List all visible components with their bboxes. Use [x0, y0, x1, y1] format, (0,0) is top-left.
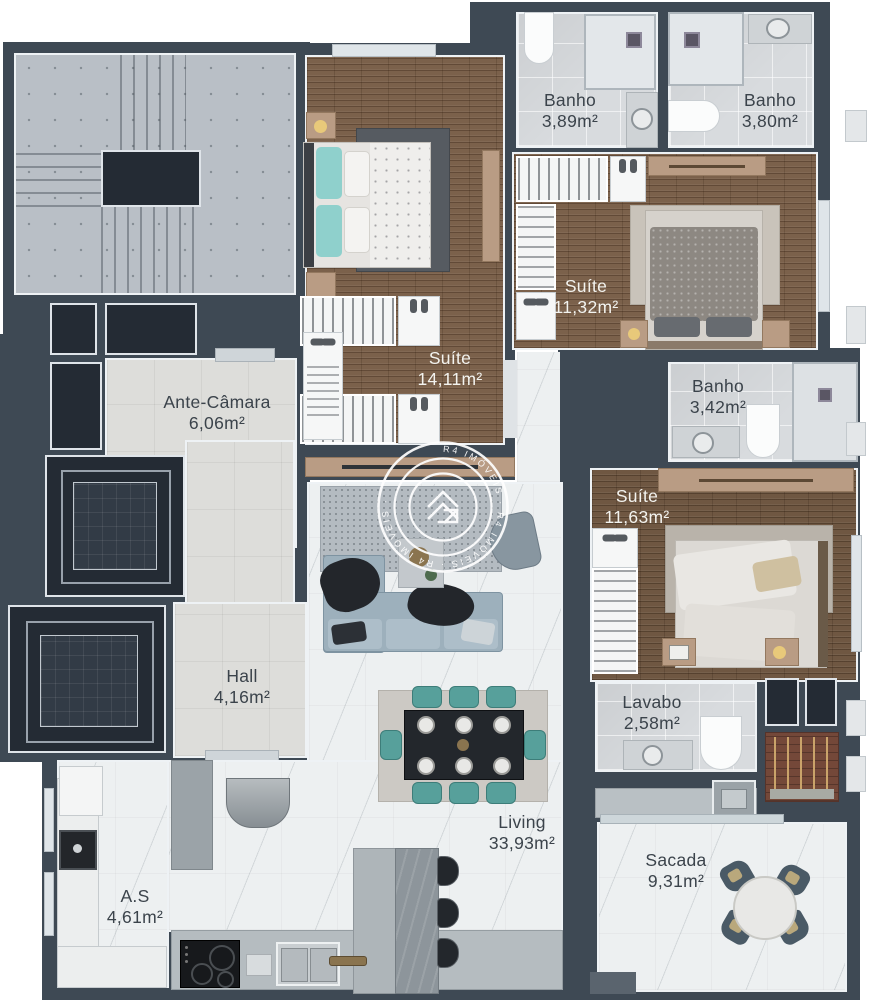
- room-name: Suíte: [384, 348, 516, 369]
- elevator-shaft: [45, 455, 185, 597]
- tv-dresser: [482, 150, 500, 262]
- duct-shaft: [765, 678, 799, 726]
- dining-chair: [486, 782, 516, 804]
- ac-unit: [846, 756, 866, 792]
- stairs-upper-flight: [120, 55, 186, 150]
- ac-unit: [845, 110, 867, 142]
- room-label-banho-380: Banho 3,80m²: [704, 90, 836, 132]
- blanket: [370, 143, 430, 267]
- dining-chair: [380, 730, 402, 760]
- room-label-banho-389: Banho 3,89m²: [504, 90, 636, 132]
- window: [44, 872, 54, 936]
- window: [44, 788, 54, 852]
- dining-chair: [412, 686, 442, 708]
- kitchen-island: [353, 848, 437, 992]
- shoe-cabinet: [303, 332, 343, 440]
- sink: [766, 18, 790, 39]
- duvet: [650, 227, 758, 321]
- duct-shaft: [50, 303, 97, 355]
- room-name: Ante-Câmara: [135, 392, 299, 413]
- room-name: Suíte: [568, 486, 706, 507]
- pillow: [344, 151, 370, 197]
- dining-chair: [449, 782, 479, 804]
- burner: [217, 971, 234, 988]
- room-name: Suíte: [520, 276, 652, 297]
- room-area: 3,80m²: [704, 111, 836, 132]
- knob: [185, 953, 188, 956]
- headboard: [646, 341, 762, 349]
- hall-corridor-floor: [185, 440, 295, 606]
- pillow: [654, 317, 700, 337]
- window: [332, 44, 436, 57]
- shower-head: [626, 32, 642, 48]
- entrance-door: [215, 348, 275, 362]
- balcony-corner-block: [590, 972, 636, 994]
- watermark-inner-ring: [410, 474, 477, 541]
- shoe-rack: [610, 156, 646, 202]
- duct-shaft: [50, 362, 102, 450]
- floor-plan: Banho 3,89m² Banho 3,80m² Suíte 11,32m² …: [0, 0, 871, 1000]
- ac-unit: [846, 306, 866, 344]
- headboard: [304, 143, 314, 267]
- window: [818, 200, 830, 312]
- bed: [675, 540, 827, 668]
- nightstand: [306, 112, 336, 139]
- sink: [642, 745, 663, 766]
- nightstand: [765, 638, 799, 666]
- room-label-as: A.S 4,61m²: [68, 886, 202, 928]
- pillow: [316, 205, 342, 257]
- cabinet-handle: [329, 956, 367, 966]
- room-area: 3,89m²: [504, 111, 636, 132]
- pillow: [344, 207, 370, 253]
- laundry-counter: [57, 946, 167, 988]
- plate: [417, 716, 435, 734]
- room-label-suite-1411: Suíte 14,11m²: [384, 348, 516, 390]
- room-name: Banho: [652, 376, 784, 397]
- room-area: 3,42m²: [652, 397, 784, 418]
- dining-chair: [524, 730, 546, 760]
- watermark-logo: R4 IMÓVEIS · R4 IMÓVEIS · R4 IMÓVEIS ·: [375, 439, 511, 575]
- plate: [493, 716, 511, 734]
- barbecue-grill: [765, 732, 839, 802]
- nightstand: [762, 320, 790, 348]
- nightstand: [662, 638, 696, 666]
- room-area: 4,16m²: [176, 687, 308, 708]
- dining-table: [404, 710, 524, 780]
- toilet: [524, 12, 554, 64]
- room-name: Hall: [176, 666, 308, 687]
- room-area: 9,31m²: [608, 871, 744, 892]
- room-label-living: Living 33,93m²: [448, 812, 596, 854]
- room-area: 11,63m²: [568, 507, 706, 528]
- sink-basin: [281, 948, 308, 982]
- room-label-suite-1132: Suíte 11,32m²: [520, 276, 652, 318]
- pillow: [706, 317, 752, 337]
- knob: [185, 960, 188, 963]
- ac-unit: [846, 422, 866, 456]
- room-area: 11,32m²: [520, 297, 652, 318]
- plate: [455, 716, 473, 734]
- shower-head: [684, 32, 700, 48]
- watermark-ring-text: R4 IMÓVEIS · R4 IMÓVEIS · R4 IMÓVEIS ·: [380, 444, 506, 570]
- burner: [191, 963, 213, 985]
- dining-chair: [412, 782, 442, 804]
- grill-base: [770, 789, 834, 799]
- room-label-hall: Hall 4,16m²: [176, 666, 308, 708]
- shower-box: [584, 14, 656, 90]
- island-top: [353, 848, 397, 994]
- room-area: 2,58m²: [586, 713, 718, 734]
- stair-void: [101, 150, 201, 207]
- room-area: 4,61m²: [68, 907, 202, 928]
- room-area: 14,11m²: [384, 369, 516, 390]
- closet-shelves: [516, 156, 608, 202]
- laundry-cabinet: [59, 766, 103, 816]
- wall-top-nub: [470, 2, 504, 43]
- support-sink: [712, 780, 756, 818]
- shower-control: [818, 388, 832, 402]
- shoe-rack: [592, 528, 638, 568]
- watermark-monogram-icon: [429, 492, 457, 522]
- elevator-cabin: [73, 482, 157, 570]
- plate: [417, 757, 435, 775]
- centerpiece: [457, 739, 469, 751]
- dining-chair: [449, 686, 479, 708]
- island-waterfall: [395, 848, 439, 994]
- room-name: Sacada: [608, 850, 744, 871]
- room-label-lavabo: Lavabo 2,58m²: [586, 692, 718, 734]
- kitchen-cabinet: [171, 760, 213, 870]
- room-area: 33,93m²: [448, 833, 596, 854]
- room-name: Banho: [704, 90, 836, 111]
- stairs-lower-flight: [101, 207, 201, 293]
- kitchen-drawer: [246, 954, 272, 976]
- grill-skewers: [774, 737, 832, 789]
- cooktop: [180, 940, 240, 988]
- shower-box: [668, 12, 744, 86]
- room-name: A.S: [68, 886, 202, 907]
- range-hood: [226, 778, 290, 828]
- bed: [303, 142, 431, 268]
- room-label-sacada: Sacada 9,31m²: [608, 850, 744, 892]
- ac-unit: [846, 700, 866, 736]
- bed: [645, 210, 763, 350]
- window: [851, 535, 862, 652]
- shoe-rack: [398, 296, 440, 346]
- room-label-ante-camara: Ante-Câmara 6,06m²: [135, 392, 299, 434]
- laundry-tank: [59, 830, 97, 870]
- balcony-floor: [597, 822, 847, 992]
- knob: [185, 946, 188, 949]
- sink: [692, 432, 714, 454]
- closet-drawers: [592, 568, 638, 674]
- plate: [493, 757, 511, 775]
- watermark-outer-ring: [379, 443, 508, 572]
- headboard: [818, 541, 828, 667]
- stairs-left-flight: [16, 143, 101, 207]
- duct-shaft: [105, 303, 197, 355]
- room-label-suite-1163: Suíte 11,63m²: [568, 486, 706, 528]
- room-name: Banho: [504, 90, 636, 111]
- burner: [209, 945, 235, 971]
- elevator-shaft: [8, 605, 166, 753]
- dresser: [648, 156, 766, 176]
- plate: [455, 757, 473, 775]
- room-label-banho-342: Banho 3,42m²: [652, 376, 784, 418]
- room-name: Lavabo: [586, 692, 718, 713]
- glass-door: [600, 814, 784, 824]
- duct-shaft: [805, 678, 837, 726]
- room-area: 6,06m²: [135, 413, 299, 434]
- pillow: [316, 147, 342, 199]
- nightstand: [620, 320, 648, 348]
- elevator-cabin: [40, 635, 138, 727]
- suite-corridor-floor: [517, 352, 560, 482]
- dining-chair: [486, 686, 516, 708]
- room-name: Living: [448, 812, 596, 833]
- shoe-rack: [398, 394, 440, 444]
